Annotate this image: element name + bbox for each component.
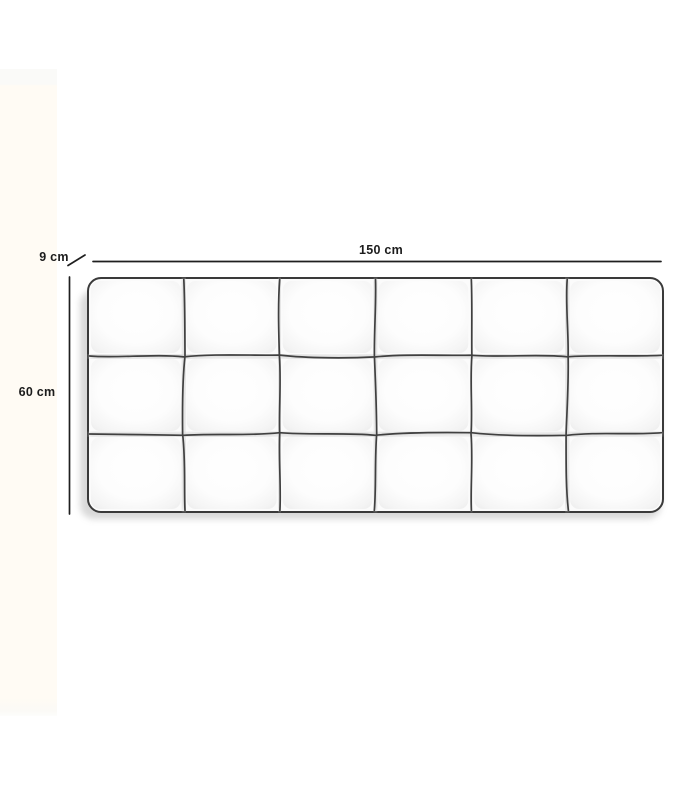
product-dimension-page: 150 cm 60 cm 9 cm bbox=[0, 0, 700, 800]
depth-tick-line bbox=[68, 255, 85, 266]
tuft-cell bbox=[379, 359, 469, 431]
tuft-cell bbox=[474, 281, 564, 353]
tuft-cell bbox=[187, 281, 277, 353]
tuft-cell bbox=[283, 281, 373, 353]
width-dimension-label: 150 cm bbox=[359, 243, 403, 257]
seam-path bbox=[471, 280, 472, 511]
tuft-cell bbox=[187, 437, 277, 509]
tuft-cell bbox=[379, 281, 469, 353]
height-dimension-label: 60 cm bbox=[19, 385, 56, 399]
tuft-cell bbox=[91, 437, 181, 509]
tuft-cell bbox=[570, 437, 660, 509]
tuft-cell bbox=[91, 359, 181, 431]
tuft-cell bbox=[570, 359, 660, 431]
tuft-cell bbox=[91, 281, 181, 353]
tuft-cell bbox=[474, 359, 564, 431]
tuft-cell bbox=[187, 359, 277, 431]
tuft-cell bbox=[570, 281, 660, 353]
tuft-cell bbox=[283, 437, 373, 509]
tuft-cell bbox=[474, 437, 564, 509]
tuft-cell bbox=[379, 437, 469, 509]
depth-dimension-label: 9 cm bbox=[39, 250, 69, 264]
tuft-cell bbox=[283, 359, 373, 431]
headboard-dimension-diagram bbox=[0, 0, 700, 800]
